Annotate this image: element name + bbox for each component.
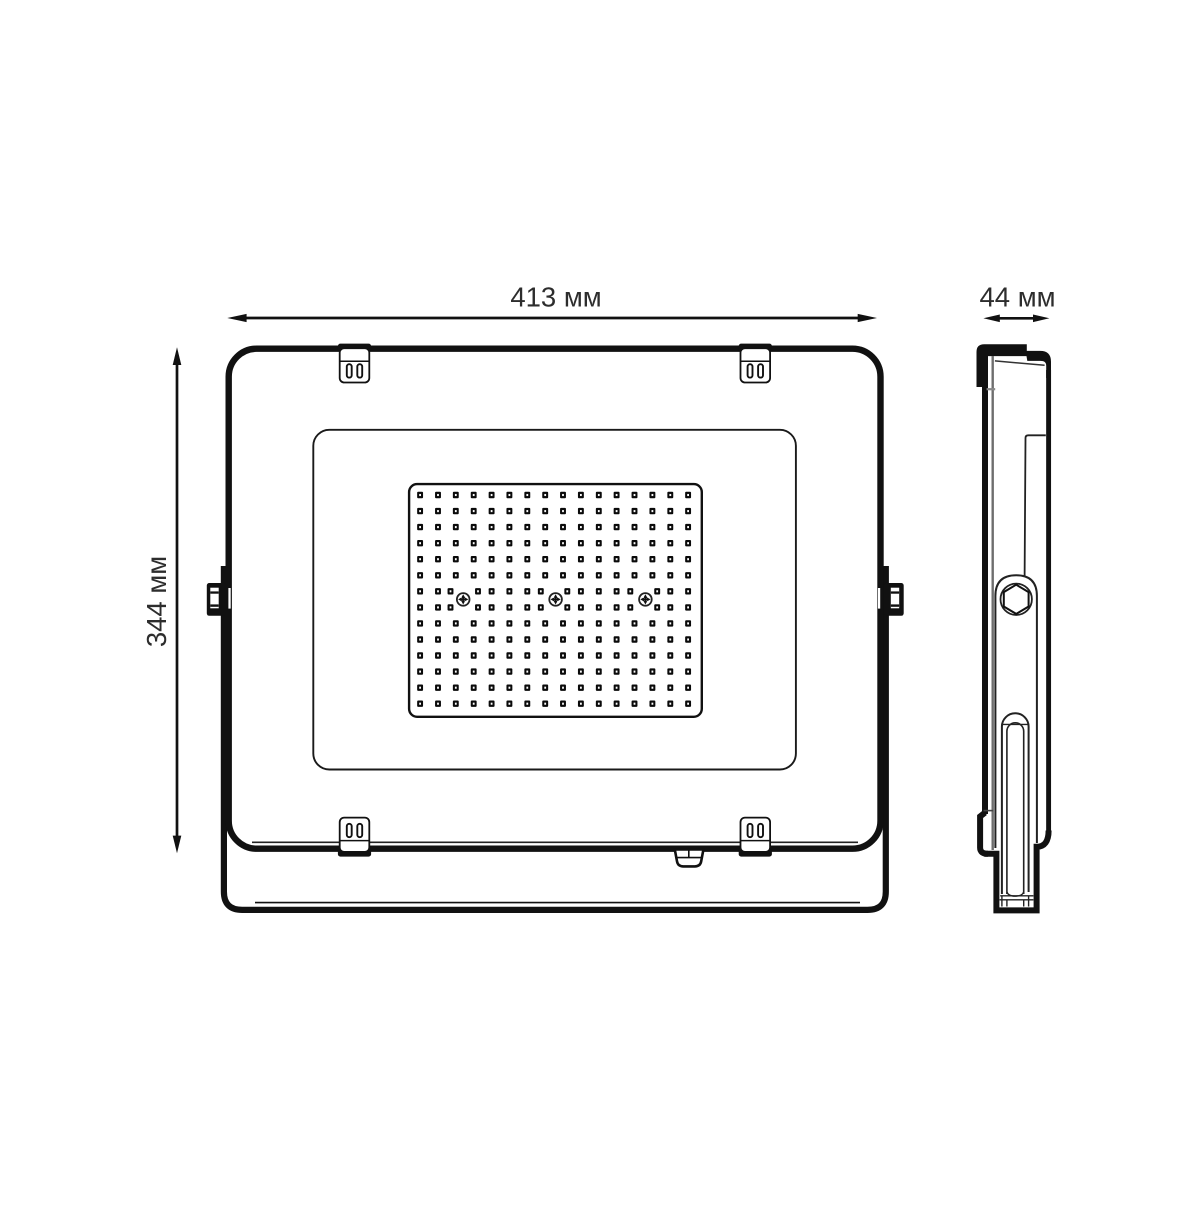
svg-text:44 мм: 44 мм bbox=[979, 282, 1055, 313]
svg-text:413 мм: 413 мм bbox=[510, 282, 601, 313]
svg-text:344 мм: 344 мм bbox=[141, 556, 172, 647]
